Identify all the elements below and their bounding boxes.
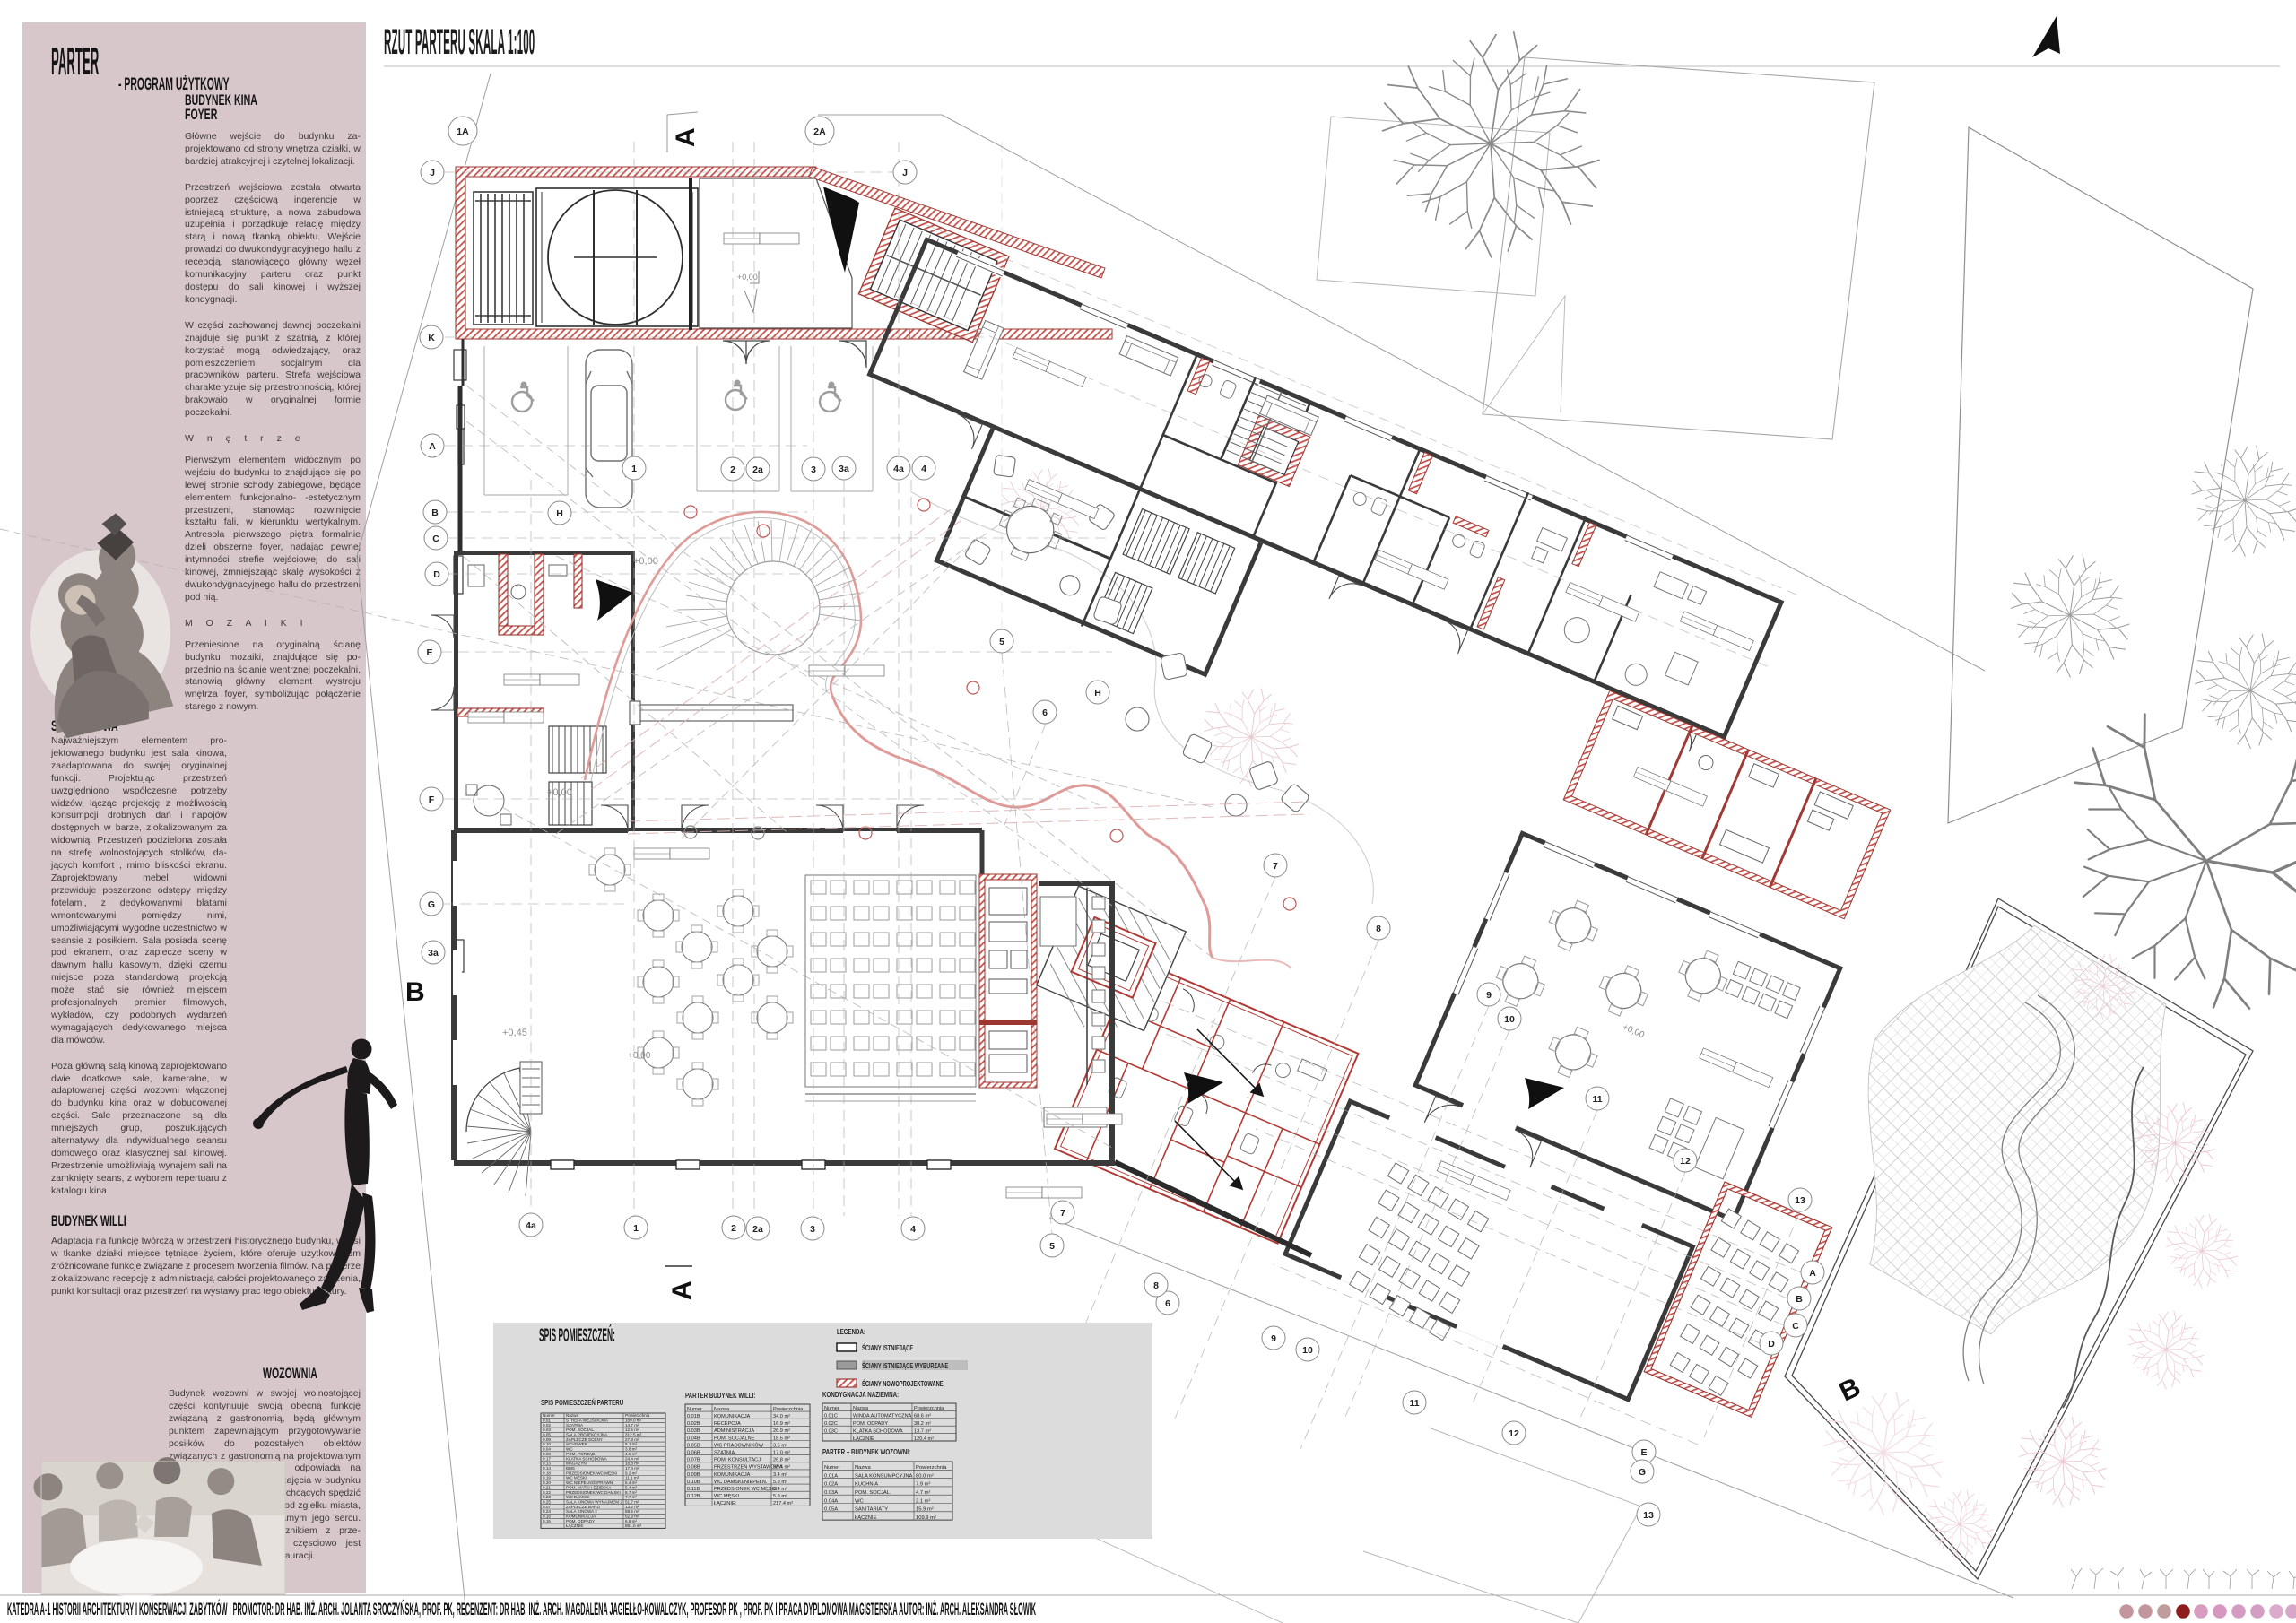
svg-text:0.06B: 0.06B <box>687 1451 700 1456</box>
svg-text:E: E <box>426 647 432 658</box>
svg-text:KOMUNIKACJA: KOMUNIKACJA <box>566 1515 596 1519</box>
svg-text:5: 5 <box>999 637 1004 647</box>
svg-text:0.11B: 0.11B <box>687 1487 700 1492</box>
svg-text:2a: 2a <box>752 1224 763 1235</box>
svg-text:0.05B: 0.05B <box>687 1443 700 1448</box>
svg-text:PARTER BUDYNEK WILLI:: PARTER BUDYNEK WILLI: <box>685 1392 755 1400</box>
svg-text:17.4 m²: 17.4 m² <box>625 1466 639 1471</box>
svg-text:0.01C: 0.01C <box>824 1414 838 1419</box>
svg-text:0.21: 0.21 <box>543 1485 551 1489</box>
svg-text:5: 5 <box>1049 1241 1055 1252</box>
svg-text:+0,00: +0,00 <box>628 1051 651 1061</box>
svg-text:PRZEDSIONEK WC DAMSKI: PRZEDSIONEK WC DAMSKI <box>566 1490 621 1495</box>
svg-text:LEGENDA:: LEGENDA: <box>837 1327 865 1336</box>
svg-text:POM. ODPADY: POM. ODPADY <box>853 1421 888 1427</box>
svg-text:10: 10 <box>1504 1014 1515 1025</box>
svg-text:8: 8 <box>1153 1280 1159 1291</box>
svg-text:F: F <box>429 794 435 805</box>
svg-text:24.4 m²: 24.4 m² <box>625 1456 639 1461</box>
svg-text:34.0 m²: 34.0 m² <box>773 1414 790 1419</box>
svg-text:11.1 m²: 11.1 m² <box>625 1476 639 1480</box>
svg-text:RZUT PARTERU SKALA 1:100: RZUT PARTERU SKALA 1:100 <box>384 22 535 63</box>
svg-text:0.16: 0.16 <box>543 1515 551 1519</box>
svg-text:0.03B: 0.03B <box>687 1428 700 1434</box>
svg-text:SPIS POMIESZCZEŃ:: SPIS POMIESZCZEŃ: <box>539 1324 615 1346</box>
svg-text:Powierzchnia: Powierzchnia <box>914 1406 944 1411</box>
svg-text:16.9 m²: 16.9 m² <box>773 1421 790 1427</box>
svg-text:Nazwa: Nazwa <box>853 1406 869 1411</box>
svg-text:KOMUNIKACJA: KOMUNIKACJA <box>714 1472 751 1478</box>
svg-text:12.5 m²: 12.5 m² <box>625 1428 639 1432</box>
svg-text:Powierzchnia: Powierzchnia <box>625 1413 650 1418</box>
svg-text:Numer: Numer <box>687 1407 702 1412</box>
svg-text:0.07: 0.07 <box>543 1505 551 1509</box>
svg-text:G: G <box>1639 1467 1646 1478</box>
svg-text:J: J <box>430 168 435 178</box>
svg-text:+0,45: +0,45 <box>502 1028 527 1038</box>
svg-text:WINDA AUTOMATYCZNA: WINDA AUTOMATYCZNA <box>853 1414 912 1419</box>
svg-text:26.8 m²: 26.8 m² <box>773 1458 790 1463</box>
svg-text:Numer: Numer <box>543 1413 555 1418</box>
svg-text:11: 11 <box>1409 1398 1419 1409</box>
svg-text:0.04: 0.04 <box>543 1447 551 1452</box>
svg-text:POM. KONSULTACJI: POM. KONSULTACJI <box>714 1458 762 1463</box>
svg-text:7: 7 <box>1060 1208 1065 1219</box>
svg-text:9: 9 <box>1271 1333 1276 1344</box>
svg-text:Nazwa: Nazwa <box>566 1413 578 1418</box>
svg-text:0.03A: 0.03A <box>824 1490 838 1496</box>
svg-text:RECEPCJA: RECEPCJA <box>714 1421 741 1427</box>
svg-text:D: D <box>1768 1339 1775 1350</box>
svg-text:12: 12 <box>1680 1156 1691 1167</box>
svg-text:4.5 m²: 4.5 m² <box>625 1452 637 1456</box>
svg-text:9: 9 <box>1486 990 1492 1001</box>
svg-text:BMS: BMS <box>566 1466 575 1471</box>
svg-text:0.10B: 0.10B <box>687 1480 700 1485</box>
svg-text:A: A <box>667 1280 697 1300</box>
svg-text:SALA PROJEKCYJNA: SALA PROJEKCYJNA <box>566 1433 608 1437</box>
svg-text:3: 3 <box>810 1224 815 1235</box>
svg-text:5.9 m²: 5.9 m² <box>773 1494 787 1499</box>
svg-text:15.9 m²: 15.9 m² <box>916 1507 934 1513</box>
svg-text:SALA KINOWA WYNAJMEM 2: SALA KINOWA WYNAJMEM 2 <box>566 1500 622 1505</box>
svg-text:SZATNIA: SZATNIA <box>714 1451 735 1456</box>
svg-text:WC NIEPEŁNOSPRAWNI: WC NIEPEŁNOSPRAWNI <box>566 1480 613 1485</box>
svg-text:KLATKA SCHODOWA: KLATKA SCHODOWA <box>853 1428 903 1434</box>
svg-text:5.4 m²: 5.4 m² <box>625 1480 637 1485</box>
svg-text:1A: 1A <box>457 126 469 137</box>
svg-text:MAGAZYN: MAGAZYN <box>566 1462 587 1466</box>
svg-text:WC: WC <box>566 1447 573 1452</box>
svg-text:4: 4 <box>921 464 926 474</box>
svg-text:+0,00: +0,00 <box>547 787 572 798</box>
svg-text:0.05: 0.05 <box>543 1433 551 1437</box>
svg-text:PRZEDSIONEK WC MĘSKI: PRZEDSIONEK WC MĘSKI <box>714 1487 777 1492</box>
svg-text:H: H <box>1094 688 1101 699</box>
svg-text:8.7 m²: 8.7 m² <box>625 1490 637 1495</box>
svg-text:0.09B: 0.09B <box>687 1472 700 1478</box>
svg-text:3.8 m²: 3.8 m² <box>625 1447 637 1452</box>
svg-text:13.2 m²: 13.2 m² <box>625 1505 639 1509</box>
svg-text:SALA KONSUMPCYJNA: SALA KONSUMPCYJNA <box>855 1473 913 1479</box>
svg-text:H: H <box>556 508 563 519</box>
svg-text:6: 6 <box>1165 1298 1170 1309</box>
svg-text:ZAPLECZE BARU: ZAPLECZE BARU <box>566 1505 600 1509</box>
svg-text:13: 13 <box>1643 1510 1654 1521</box>
svg-text:POM. SOCJALNE: POM. SOCJALNE <box>714 1436 755 1441</box>
svg-text:120.4 m²: 120.4 m² <box>914 1436 934 1442</box>
svg-text:9.2 m²: 9.2 m² <box>625 1471 637 1475</box>
svg-text:0.22: 0.22 <box>543 1490 551 1495</box>
svg-text:KONDYGNACJA NAZIEMNA:: KONDYGNACJA NAZIEMNA: <box>822 1391 899 1399</box>
svg-text:4: 4 <box>910 1224 916 1235</box>
svg-text:KOMUNIKACJA: KOMUNIKACJA <box>714 1414 751 1419</box>
svg-text:1: 1 <box>631 464 637 474</box>
svg-text:3a: 3a <box>428 948 439 959</box>
svg-text:KATEDRA A-1 HISTORII ARCHITEKT: KATEDRA A-1 HISTORII ARCHITEKTURY I KONS… <box>7 1599 1036 1620</box>
svg-text:217.4 m²: 217.4 m² <box>773 1501 793 1506</box>
svg-text:0.23: 0.23 <box>543 1495 551 1499</box>
svg-text:0.04A: 0.04A <box>824 1498 838 1504</box>
svg-text:ŁĄCZNIE: ŁĄCZNIE <box>853 1436 874 1442</box>
svg-text:27.8 m²: 27.8 m² <box>625 1437 639 1442</box>
svg-text:3: 3 <box>811 464 816 475</box>
svg-text:7: 7 <box>1273 861 1278 872</box>
svg-text:0.02C: 0.02C <box>824 1421 838 1427</box>
svg-text:2: 2 <box>731 1223 736 1234</box>
svg-text:0.14: 0.14 <box>543 1466 551 1471</box>
svg-text:0.03C: 0.03C <box>824 1428 838 1434</box>
svg-text:8: 8 <box>1376 924 1381 934</box>
svg-text:SALA KINOWA 2: SALA KINOWA 2 <box>566 1509 597 1514</box>
svg-text:WC PRACOWNIKÓW: WC PRACOWNIKÓW <box>714 1442 764 1448</box>
svg-text:0.12B: 0.12B <box>687 1494 700 1499</box>
svg-text:WC DAMSKI: WC DAMSKI <box>566 1495 590 1499</box>
svg-text:KUCHNIA: KUCHNIA <box>855 1482 878 1488</box>
svg-text:2: 2 <box>730 464 735 475</box>
svg-text:0.08B: 0.08B <box>687 1465 700 1471</box>
svg-text:18.8 m²: 18.8 m² <box>625 1462 639 1466</box>
svg-text:WC: WC <box>855 1498 864 1504</box>
svg-text:4.7 m²: 4.7 m² <box>916 1490 930 1496</box>
svg-text:A: A <box>429 441 436 452</box>
svg-text:109.9 m²: 109.9 m² <box>916 1515 936 1521</box>
svg-text:51.7 m²: 51.7 m² <box>625 1500 639 1505</box>
svg-text:STREFA WEJŚCIOWA: STREFA WEJŚCIOWA <box>566 1417 609 1423</box>
svg-text:6.1 m²: 6.1 m² <box>625 1442 637 1446</box>
svg-text:0.02A: 0.02A <box>824 1482 838 1488</box>
svg-text:ADMINISTRACJA: ADMINISTRACJA <box>714 1428 754 1434</box>
svg-text:0.01: 0.01 <box>543 1419 551 1423</box>
svg-text:13.7 m²: 13.7 m² <box>914 1428 931 1434</box>
svg-text:5.4 m²: 5.4 m² <box>625 1485 637 1489</box>
svg-text:ZAPLECZE SCENY: ZAPLECZE SCENY <box>566 1437 603 1442</box>
svg-text:ŁĄCZNIE: ŁĄCZNIE <box>566 1523 583 1528</box>
svg-text:0.04B: 0.04B <box>687 1436 700 1441</box>
svg-text:0.18: 0.18 <box>543 1471 551 1475</box>
svg-text:ŁĄCZNIE:: ŁĄCZNIE: <box>714 1501 737 1506</box>
svg-text:A: A <box>671 127 700 147</box>
svg-text:4a: 4a <box>526 1220 536 1231</box>
svg-text:80.0 m²: 80.0 m² <box>916 1473 934 1479</box>
svg-text:ŁĄCZNIE: ŁĄCZNIE <box>855 1515 877 1521</box>
svg-text:2a: 2a <box>752 464 763 475</box>
svg-text:POM. ODPADY: POM. ODPADY <box>566 1519 595 1523</box>
svg-text:18.5 m²: 18.5 m² <box>773 1436 790 1441</box>
svg-text:SCHOWEK: SCHOWEK <box>566 1442 588 1446</box>
svg-text:POM. PORZĄD.: POM. PORZĄD. <box>566 1452 596 1456</box>
svg-text:312.5 m²: 312.5 m² <box>625 1433 642 1437</box>
svg-text:17.0 m²: 17.0 m² <box>773 1451 790 1456</box>
svg-text:3.5 m²: 3.5 m² <box>773 1443 787 1448</box>
svg-text:SANITARIATY: SANITARIATY <box>855 1507 888 1513</box>
svg-text:0.03: 0.03 <box>543 1428 551 1432</box>
svg-text:62.9 m²: 62.9 m² <box>625 1515 639 1519</box>
svg-text:B: B <box>1796 1294 1803 1305</box>
svg-text:C: C <box>1792 1321 1799 1332</box>
svg-text:0.01B: 0.01B <box>687 1414 700 1419</box>
svg-text:Numer: Numer <box>824 1465 839 1471</box>
svg-text:26.9 m²: 26.9 m² <box>773 1428 790 1434</box>
svg-text:0.09: 0.09 <box>543 1437 551 1442</box>
svg-text:C: C <box>432 534 439 544</box>
svg-text:3a: 3a <box>839 464 849 474</box>
svg-text:10: 10 <box>1302 1345 1313 1356</box>
svg-text:0.20: 0.20 <box>543 1480 551 1485</box>
svg-text:Nazwa: Nazwa <box>855 1465 871 1471</box>
svg-text:0.08: 0.08 <box>543 1452 551 1456</box>
svg-text:B: B <box>431 508 439 518</box>
svg-text:POM. SOCJAL.: POM. SOCJAL. <box>566 1428 595 1432</box>
svg-text:0.19: 0.19 <box>543 1476 551 1480</box>
svg-text:0.17: 0.17 <box>543 1456 551 1461</box>
svg-text:2.1 m²: 2.1 m² <box>916 1498 930 1504</box>
svg-text:0.15: 0.15 <box>543 1519 551 1523</box>
svg-text:B: B <box>1835 1372 1865 1407</box>
svg-text:Numer: Numer <box>824 1406 839 1411</box>
svg-text:+0,00: +0,00 <box>633 556 658 567</box>
svg-text:0.13: 0.13 <box>543 1462 551 1466</box>
svg-text:881.0 m²: 881.0 m² <box>625 1523 642 1528</box>
svg-text:88.5 m²: 88.5 m² <box>625 1509 639 1514</box>
svg-text:5.9 m²: 5.9 m² <box>773 1480 787 1485</box>
svg-text:0.02B: 0.02B <box>687 1421 700 1427</box>
svg-text:68.6 m²: 68.6 m² <box>914 1414 931 1419</box>
svg-text:WC MĘSKI: WC MĘSKI <box>714 1494 740 1499</box>
svg-text:ŚCIANY ISTNIEJĄCE WYBURZANE: ŚCIANY ISTNIEJĄCE WYBURZANE <box>862 1361 948 1370</box>
svg-text:14.7 m²: 14.7 m² <box>625 1423 639 1428</box>
svg-text:7.7 m²: 7.7 m² <box>625 1495 637 1499</box>
svg-text:E: E <box>1640 1447 1647 1458</box>
svg-text:3.4 m²: 3.4 m² <box>773 1472 787 1478</box>
svg-text:KLATKA SCHODOWA: KLATKA SCHODOWA <box>566 1456 608 1461</box>
svg-text:K: K <box>428 333 435 343</box>
svg-text:PARTER – BUDYNEK WOZOWNI:: PARTER – BUDYNEK WOZOWNI: <box>822 1448 910 1456</box>
svg-text:ŚCIANY ISTNIEJĄCE: ŚCIANY ISTNIEJĄCE <box>862 1343 913 1352</box>
svg-text:WC DAMSKI/NIEPEŁN.: WC DAMSKI/NIEPEŁN. <box>714 1480 768 1485</box>
svg-text:0.07B: 0.07B <box>687 1458 700 1463</box>
svg-text:Powierzchnia: Powierzchnia <box>916 1465 947 1471</box>
svg-text:G: G <box>428 899 435 910</box>
svg-text:4a: 4a <box>893 464 904 474</box>
svg-text:7.9 m²: 7.9 m² <box>916 1482 930 1488</box>
svg-text:0.01A: 0.01A <box>824 1473 838 1479</box>
svg-text:POM. SOCJAL.: POM. SOCJAL. <box>855 1490 891 1496</box>
svg-text:POM. MATKI I DZIECKA: POM. MATKI I DZIECKA <box>566 1485 612 1489</box>
svg-text:12: 12 <box>1509 1428 1519 1439</box>
svg-text:Powierzchnia: Powierzchnia <box>773 1407 804 1412</box>
svg-text:6.8 m²: 6.8 m² <box>625 1519 637 1523</box>
svg-text:SZATNIA: SZATNIA <box>566 1423 584 1428</box>
svg-text:ŚCIANY NOWOPROJEKTOWANE: ŚCIANY NOWOPROJEKTOWANE <box>862 1379 944 1388</box>
svg-text:D: D <box>433 569 440 580</box>
svg-text:A: A <box>1809 1268 1816 1279</box>
svg-text:6: 6 <box>1042 707 1048 718</box>
svg-text:0.24: 0.24 <box>543 1509 551 1514</box>
svg-text:Nazwa: Nazwa <box>714 1407 730 1412</box>
svg-text:3.4 m²: 3.4 m² <box>773 1487 787 1492</box>
svg-text:11: 11 <box>1592 1094 1602 1105</box>
svg-text:0.02: 0.02 <box>543 1423 551 1428</box>
svg-text:+0,00: +0,00 <box>1621 1022 1646 1040</box>
svg-text:1: 1 <box>633 1223 639 1234</box>
svg-text:SPIS POMIESZCZEŃ PARTERU: SPIS POMIESZCZEŃ PARTERU <box>541 1398 623 1407</box>
svg-text:13: 13 <box>1795 1195 1805 1206</box>
svg-text:55.4 m²: 55.4 m² <box>773 1465 790 1471</box>
svg-text:2A: 2A <box>813 126 826 137</box>
svg-text:WC MĘSKI: WC MĘSKI <box>566 1476 587 1480</box>
svg-text:B: B <box>405 977 425 1007</box>
svg-text:J: J <box>902 168 908 178</box>
svg-text:0.25: 0.25 <box>543 1500 551 1505</box>
svg-text:38.2 m²: 38.2 m² <box>914 1421 931 1427</box>
svg-text:0.10: 0.10 <box>543 1442 551 1446</box>
svg-text:0.05A: 0.05A <box>824 1507 838 1513</box>
svg-text:PRZEDSIONEK WC MĘSKI: PRZEDSIONEK WC MĘSKI <box>566 1471 617 1475</box>
svg-text:189.0 m²: 189.0 m² <box>625 1419 642 1423</box>
